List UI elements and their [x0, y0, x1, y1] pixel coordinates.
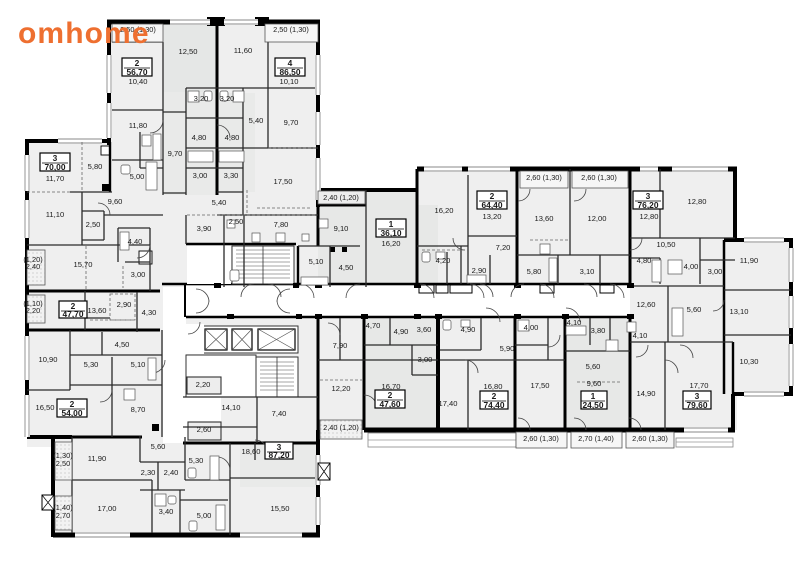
svg-text:5,10: 5,10 [309, 257, 324, 266]
svg-text:2,30: 2,30 [141, 468, 156, 477]
svg-text:64,40: 64,40 [482, 200, 503, 210]
svg-text:7,90: 7,90 [333, 341, 348, 350]
svg-text:3,90: 3,90 [197, 224, 212, 233]
svg-text:14,10: 14,10 [221, 403, 240, 412]
svg-text:18,60: 18,60 [241, 447, 260, 456]
svg-text:9,60: 9,60 [108, 197, 123, 206]
svg-text:3,20: 3,20 [194, 94, 209, 103]
svg-text:11,80: 11,80 [129, 121, 147, 130]
svg-text:4,90: 4,90 [461, 325, 476, 334]
svg-text:17,00: 17,00 [97, 504, 116, 513]
svg-text:4,80: 4,80 [192, 133, 207, 142]
svg-text:87,20: 87,20 [269, 450, 290, 460]
svg-text:10,30: 10,30 [739, 357, 758, 366]
svg-text:13,20: 13,20 [482, 212, 501, 221]
svg-text:4,10: 4,10 [567, 318, 582, 327]
svg-text:2,60 (1,30): 2,60 (1,30) [526, 173, 562, 182]
svg-text:4,50: 4,50 [339, 263, 354, 272]
svg-text:11,70: 11,70 [46, 174, 64, 183]
svg-text:16,80: 16,80 [483, 382, 502, 391]
svg-text:2,60 (1,30): 2,60 (1,30) [523, 434, 559, 443]
svg-text:11,90: 11,90 [88, 454, 106, 463]
svg-text:12,20: 12,20 [331, 384, 350, 393]
svg-text:12,80: 12,80 [639, 212, 658, 221]
svg-text:7,40: 7,40 [272, 409, 287, 418]
svg-text:17,50: 17,50 [530, 381, 549, 390]
svg-text:24,50: 24,50 [583, 400, 604, 410]
svg-text:9,10: 9,10 [334, 224, 349, 233]
svg-text:2,40 (1,20): 2,40 (1,20) [323, 193, 359, 202]
svg-text:3,00: 3,00 [193, 171, 208, 180]
svg-text:8,70: 8,70 [131, 405, 146, 414]
svg-text:76,20: 76,20 [638, 200, 659, 210]
svg-text:86,50: 86,50 [280, 67, 301, 77]
svg-text:omhome: omhome [18, 17, 150, 50]
svg-text:5,80: 5,80 [527, 267, 542, 276]
svg-text:15,50: 15,50 [270, 504, 289, 513]
svg-text:2,50: 2,50 [229, 217, 244, 226]
svg-text:3,80: 3,80 [591, 326, 606, 335]
svg-text:4,80: 4,80 [637, 256, 652, 265]
svg-text:3,40: 3,40 [159, 507, 174, 516]
svg-text:4,70: 4,70 [366, 321, 381, 330]
svg-text:70,00: 70,00 [45, 162, 66, 172]
svg-text:74,40: 74,40 [484, 400, 505, 410]
svg-text:17,50: 17,50 [273, 177, 292, 186]
svg-text:4,00: 4,00 [684, 262, 699, 271]
svg-text:2,20: 2,20 [26, 306, 40, 315]
svg-text:3,20: 3,20 [220, 94, 235, 103]
svg-text:4,90: 4,90 [394, 327, 409, 336]
svg-text:2,70 (1,40): 2,70 (1,40) [578, 434, 614, 443]
svg-text:12,80: 12,80 [687, 197, 706, 206]
svg-text:54,00: 54,00 [62, 408, 83, 418]
svg-text:3,00: 3,00 [708, 267, 723, 276]
svg-text:13,60: 13,60 [534, 214, 553, 223]
svg-text:5,90: 5,90 [500, 344, 515, 353]
svg-text:16,20: 16,20 [434, 206, 453, 215]
svg-text:2,40: 2,40 [26, 262, 40, 271]
svg-text:5,40: 5,40 [212, 198, 227, 207]
svg-text:12,50: 12,50 [178, 47, 197, 56]
svg-text:16,50: 16,50 [35, 403, 54, 412]
svg-text:7,80: 7,80 [274, 220, 289, 229]
svg-text:5,60: 5,60 [586, 362, 601, 371]
svg-text:11,10: 11,10 [46, 210, 64, 219]
svg-text:17,70: 17,70 [689, 381, 708, 390]
svg-text:9,70: 9,70 [168, 149, 183, 158]
svg-text:4,10: 4,10 [633, 331, 648, 340]
svg-text:9,70: 9,70 [284, 118, 299, 127]
svg-text:5,40: 5,40 [249, 116, 264, 125]
svg-text:3,00: 3,00 [418, 355, 433, 364]
svg-text:3,60: 3,60 [417, 325, 432, 334]
svg-text:9,60: 9,60 [587, 379, 602, 388]
svg-text:11,90: 11,90 [740, 256, 758, 265]
svg-text:47,60: 47,60 [380, 399, 401, 409]
svg-text:5,60: 5,60 [151, 442, 166, 451]
svg-text:56,70: 56,70 [127, 67, 148, 77]
svg-text:4,20: 4,20 [436, 256, 451, 265]
svg-text:2,50: 2,50 [86, 220, 101, 229]
svg-text:17,40: 17,40 [438, 399, 457, 408]
svg-text:4,00: 4,00 [524, 323, 539, 332]
svg-text:2,90: 2,90 [117, 300, 132, 309]
svg-text:3,30: 3,30 [224, 171, 239, 180]
svg-text:79,60: 79,60 [687, 400, 708, 410]
svg-text:12,60: 12,60 [636, 300, 655, 309]
svg-text:2,70: 2,70 [56, 511, 70, 520]
svg-text:5,30: 5,30 [189, 456, 204, 465]
svg-text:5,00: 5,00 [130, 172, 145, 181]
svg-text:13,10: 13,10 [729, 307, 748, 316]
svg-text:2,40: 2,40 [164, 468, 179, 477]
svg-text:2,20: 2,20 [196, 380, 211, 389]
svg-text:2,40 (1,20): 2,40 (1,20) [323, 423, 359, 432]
svg-text:10,90: 10,90 [38, 355, 57, 364]
svg-text:5,60: 5,60 [687, 305, 702, 314]
svg-text:3,00: 3,00 [131, 270, 146, 279]
svg-text:5,80: 5,80 [88, 162, 103, 171]
svg-text:5,10: 5,10 [131, 360, 146, 369]
svg-text:11,60: 11,60 [234, 46, 252, 55]
svg-text:47,70: 47,70 [63, 309, 84, 319]
svg-text:15,70: 15,70 [73, 260, 92, 269]
svg-text:2,60 (1,30): 2,60 (1,30) [581, 173, 617, 182]
svg-text:4,80: 4,80 [225, 133, 240, 142]
svg-text:2,60: 2,60 [197, 425, 212, 434]
svg-text:10,40: 10,40 [128, 77, 147, 86]
svg-text:2,90: 2,90 [472, 266, 487, 275]
svg-text:5,00: 5,00 [197, 511, 212, 520]
svg-text:2,60 (1,30): 2,60 (1,30) [632, 434, 668, 443]
svg-text:2,50 (1,30): 2,50 (1,30) [273, 25, 309, 34]
svg-text:36,10: 36,10 [381, 228, 402, 238]
svg-text:2,50: 2,50 [56, 459, 70, 468]
svg-text:4,30: 4,30 [142, 308, 157, 317]
svg-text:10,10: 10,10 [279, 77, 298, 86]
svg-text:12,00: 12,00 [587, 214, 606, 223]
svg-text:16,20: 16,20 [381, 239, 400, 248]
svg-text:10,50: 10,50 [656, 240, 675, 249]
svg-text:13,60: 13,60 [87, 306, 106, 315]
svg-text:5,30: 5,30 [84, 360, 99, 369]
svg-text:4,40: 4,40 [128, 237, 143, 246]
svg-text:14,90: 14,90 [636, 389, 655, 398]
svg-text:4,50: 4,50 [115, 340, 130, 349]
svg-text:3,10: 3,10 [580, 267, 595, 276]
svg-text:7,20: 7,20 [496, 243, 511, 252]
